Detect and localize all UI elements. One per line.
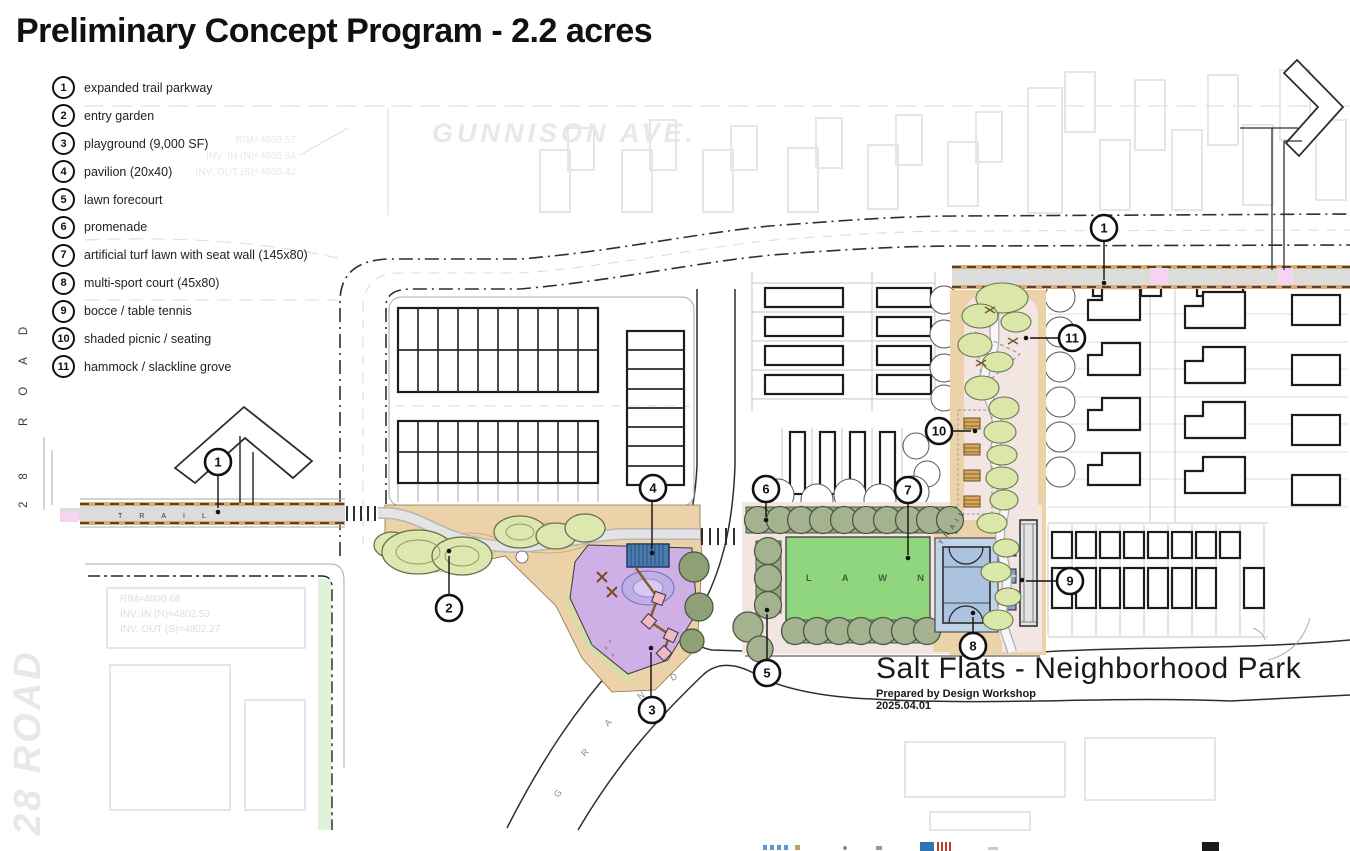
legend-item-3: 3 playground (9,000 SF) xyxy=(52,130,308,158)
legend-number-5: 5 xyxy=(52,188,75,211)
legend-label-5: lawn forecourt xyxy=(84,193,163,207)
svg-text:6: 6 xyxy=(762,482,769,497)
plan-date: 2025.04.01 xyxy=(876,700,1301,712)
svg-text:11: 11 xyxy=(1065,331,1079,346)
faint-parcel-southwest: RIM=4800.68 INV. IN (N)=4802.53 INV. OUT… xyxy=(107,588,305,810)
svg-text:4: 4 xyxy=(649,481,657,496)
svg-text:3: 3 xyxy=(648,703,655,718)
footer-logo-fragment-5 xyxy=(920,842,934,851)
footer-logo-fragment-4 xyxy=(876,846,882,850)
footer-logo-fragment-7 xyxy=(988,847,998,850)
legend-number-8: 8 xyxy=(52,272,75,295)
legend: 1 expanded trail parkway 2 entry garden … xyxy=(52,74,308,381)
svg-text:2: 2 xyxy=(445,601,452,616)
residential-east xyxy=(1045,274,1348,637)
svg-text:1: 1 xyxy=(214,455,221,470)
road-28-label: 28 ROAD xyxy=(18,305,30,508)
legend-number-1: 1 xyxy=(52,76,75,99)
svg-text:INV. IN (N)=4802.53: INV. IN (N)=4802.53 xyxy=(120,609,210,620)
pavilion xyxy=(627,544,669,567)
lawn-label: LAWN xyxy=(806,573,954,584)
footer-logo-fragment-1 xyxy=(763,845,791,850)
legend-item-6: 6 promenade xyxy=(52,213,308,241)
trail-highlight-west xyxy=(60,511,79,522)
trail-highlight-east-1 xyxy=(1150,268,1168,285)
trail-west: TRAIL xyxy=(60,499,345,527)
legend-item-11: 11 hammock / slackline grove xyxy=(52,353,308,381)
trail-label-west: TRAIL xyxy=(118,513,223,520)
legend-number-7: 7 xyxy=(52,244,75,267)
bocce-court xyxy=(1020,520,1037,626)
concept-plan-sheet: RIM=4609.57 INV. IN (N)=4605.64 INV. OUT… xyxy=(0,0,1350,851)
footer-logo-fragment-8 xyxy=(1202,842,1219,851)
legend-label-7: artificial turf lawn with seat wall (145… xyxy=(84,248,308,262)
svg-text:1: 1 xyxy=(1100,221,1107,236)
legend-number-3: 3 xyxy=(52,132,75,155)
svg-text:10: 10 xyxy=(932,424,946,439)
trail-arrow-northeast xyxy=(1240,60,1343,270)
legend-label-6: promenade xyxy=(84,220,147,234)
footer-logo-fragment-6 xyxy=(937,842,951,851)
residential-west xyxy=(752,272,958,516)
legend-label-8: multi-sport court (45x80) xyxy=(84,276,219,290)
legend-number-6: 6 xyxy=(52,216,75,239)
legend-number-9: 9 xyxy=(52,300,75,323)
legend-label-11: hammock / slackline grove xyxy=(84,360,231,374)
legend-number-2: 2 xyxy=(52,104,75,127)
legend-item-2: 2 entry garden xyxy=(52,102,308,130)
svg-text:INV. OUT (S)=4802.27: INV. OUT (S)=4802.27 xyxy=(120,624,221,635)
legend-item-5: 5 lawn forecourt xyxy=(52,186,308,214)
legend-label-3: playground (9,000 SF) xyxy=(84,137,208,151)
legend-number-10: 10 xyxy=(52,327,75,350)
trail-arrow-west xyxy=(175,407,312,503)
legend-label-1: expanded trail parkway xyxy=(84,81,213,95)
green-buffer-strip xyxy=(318,579,331,830)
legend-item-9: 9 bocce / table tennis xyxy=(52,297,308,325)
footer-logo-fragment-2 xyxy=(795,845,800,850)
faint-parcels-southeast xyxy=(905,738,1215,830)
path-alcove xyxy=(516,551,528,563)
svg-text:5: 5 xyxy=(763,666,770,681)
svg-text:7: 7 xyxy=(904,483,911,498)
svg-text:G: G xyxy=(552,788,564,800)
prepared-by-credit: Prepared by Design Workshop xyxy=(876,688,1301,700)
legend-label-9: bocce / table tennis xyxy=(84,304,192,318)
legend-number-4: 4 xyxy=(52,160,75,183)
legend-item-1: 1 expanded trail parkway xyxy=(52,74,308,102)
gunnison-ave-label: GUNNISON AVE. xyxy=(432,118,697,148)
legend-label-4: pavilion (20x40) xyxy=(84,165,172,179)
park-title: Salt Flats - Neighborhood Park xyxy=(876,652,1301,686)
legend-item-10: 10 shaded picnic / seating xyxy=(52,325,308,353)
svg-text:A: A xyxy=(602,717,613,728)
legend-number-11: 11 xyxy=(52,355,75,378)
legend-item-4: 4 pavilion (20x40) xyxy=(52,158,308,186)
road-28-watermark: 28 ROAD xyxy=(7,649,49,836)
svg-text:D: D xyxy=(669,671,680,683)
legend-item-7: 7 artificial turf lawn with seat wall (1… xyxy=(52,241,308,269)
svg-text:9: 9 xyxy=(1066,574,1073,589)
page-title: Preliminary Concept Program - 2.2 acres xyxy=(16,12,652,51)
legend-item-8: 8 multi-sport court (45x80) xyxy=(52,269,308,297)
legend-label-10: shaded picnic / seating xyxy=(84,332,211,346)
svg-text:R: R xyxy=(579,746,591,758)
svg-text:RIM=4800.68: RIM=4800.68 xyxy=(120,594,181,605)
title-block: Salt Flats - Neighborhood Park Prepared … xyxy=(876,652,1301,712)
footer-logo-fragment-3 xyxy=(843,846,847,850)
trail-highlight-east-2 xyxy=(1277,268,1293,285)
legend-label-2: entry garden xyxy=(84,109,154,123)
